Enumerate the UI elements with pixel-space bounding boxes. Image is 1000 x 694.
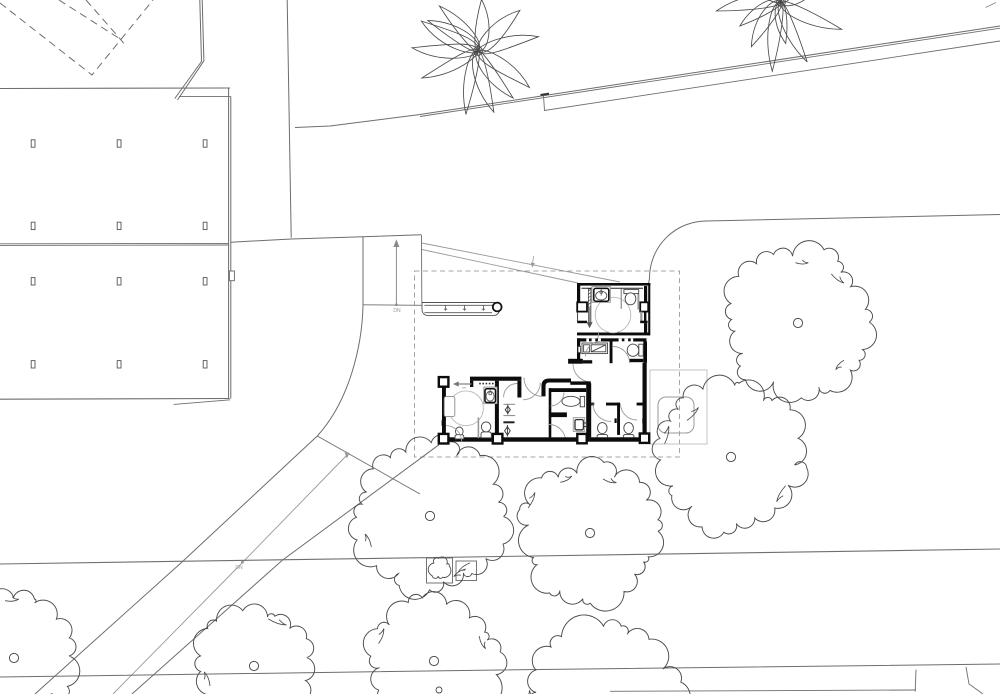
svg-text:DN: DN bbox=[393, 308, 401, 314]
svg-text:DN: DN bbox=[235, 565, 243, 571]
